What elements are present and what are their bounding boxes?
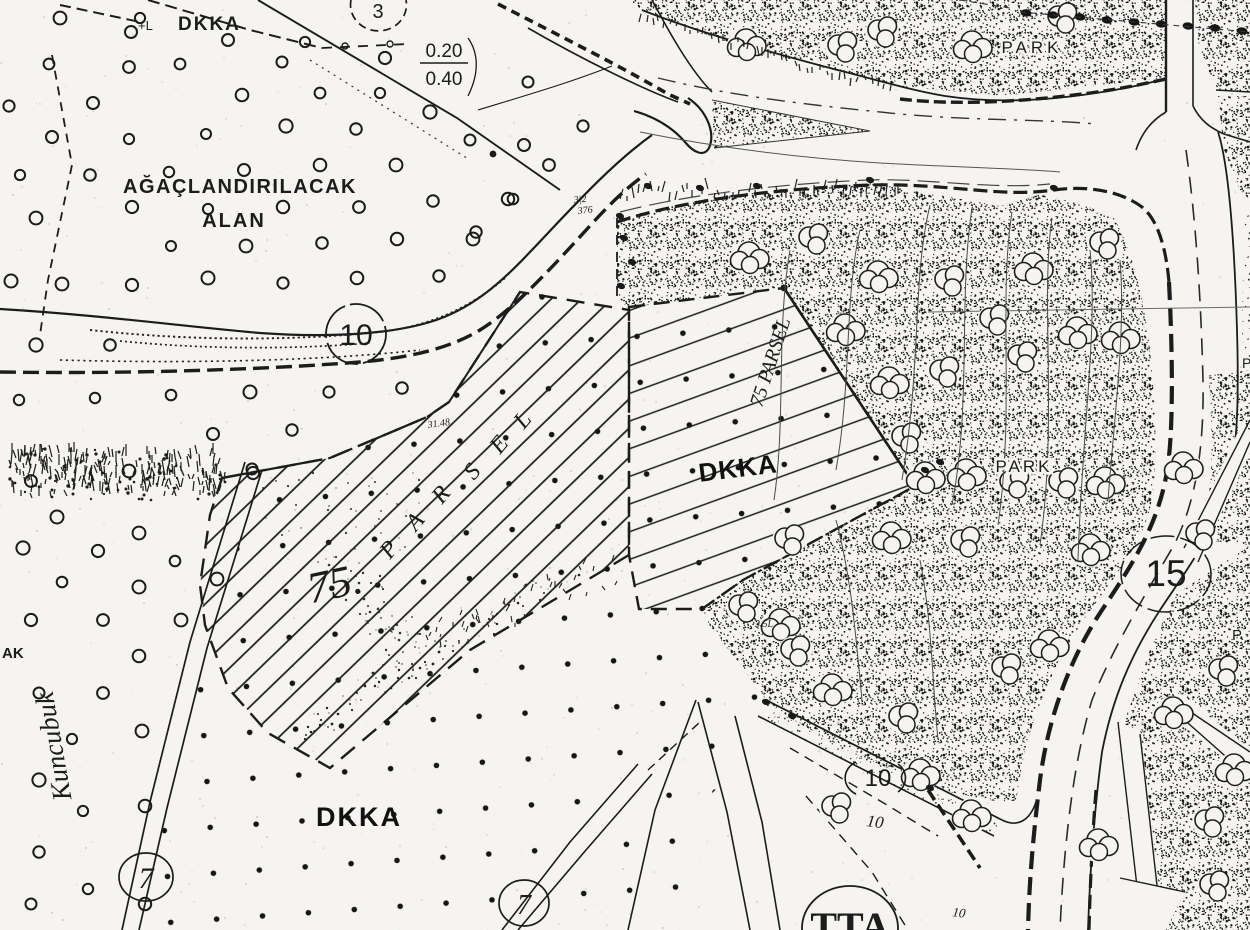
svg-text:P: P (1242, 355, 1250, 371)
svg-text:AĞAÇLANDIRILACAK: AĞAÇLANDIRILACAK (123, 174, 357, 198)
svg-text:AK: AK (2, 645, 24, 662)
svg-text:0.20: 0.20 (426, 41, 463, 62)
svg-text:3.5L: 3.5L (754, 619, 774, 630)
svg-text:+L: +L (138, 18, 153, 33)
svg-text:10: 10 (865, 811, 885, 832)
svg-text:10: 10 (865, 765, 892, 792)
svg-text:TTA: TTA (810, 904, 889, 930)
svg-text:7: 7 (139, 862, 156, 895)
svg-text:PARK: PARK (1001, 38, 1062, 57)
svg-text:3|2: 3|2 (572, 194, 587, 206)
svg-text:P.: P. (1232, 627, 1244, 644)
svg-text:ALAN: ALAN (202, 210, 266, 232)
svg-text:DKKA: DKKA (316, 802, 402, 832)
svg-text:15: 15 (1145, 553, 1186, 594)
svg-text:376: 376 (576, 204, 593, 217)
svg-text:10: 10 (339, 319, 372, 352)
svg-text:0.40: 0.40 (426, 69, 463, 90)
svg-text:10: 10 (952, 904, 967, 921)
svg-text:7: 7 (517, 890, 532, 921)
svg-text:DKKA: DKKA (178, 14, 241, 35)
svg-text:PARK: PARK (995, 457, 1052, 476)
svg-text:3: 3 (372, 1, 383, 23)
